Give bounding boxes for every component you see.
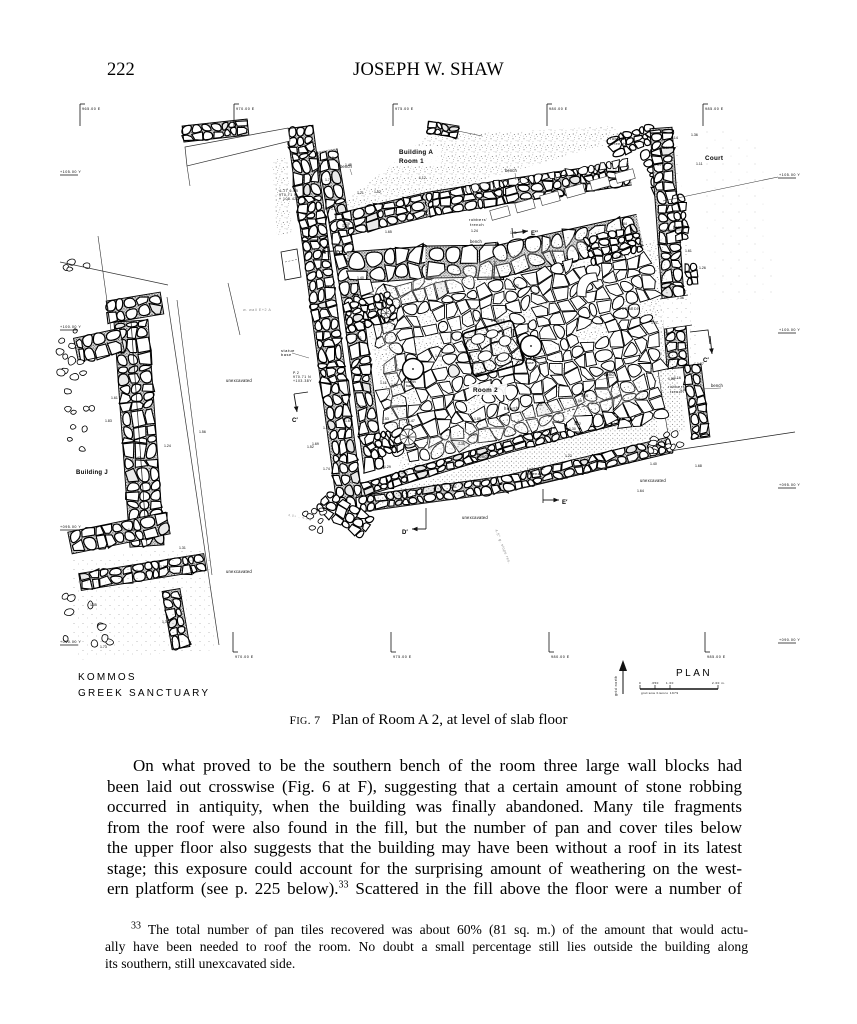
svg-text:975.00 E: 975.00 E xyxy=(393,655,412,659)
svg-text:1.64: 1.64 xyxy=(345,419,352,423)
svg-text:bench: bench xyxy=(470,239,482,244)
svg-text:1.62: 1.62 xyxy=(574,422,581,426)
svg-text:Court: Court xyxy=(705,155,724,162)
svg-text:+090.00 Y: +090.00 Y xyxy=(60,640,81,644)
svg-text:bench: bench xyxy=(673,225,685,230)
svg-text:unexcavated: unexcavated xyxy=(226,569,252,574)
svg-text:1.85: 1.85 xyxy=(474,417,481,421)
svg-text:Room 1: Room 1 xyxy=(399,158,424,165)
svg-text:1.42: 1.42 xyxy=(512,284,519,288)
svg-text:1.36: 1.36 xyxy=(677,296,684,300)
svg-text:bench: bench xyxy=(477,454,489,459)
svg-text:1.61: 1.61 xyxy=(111,396,118,400)
svg-text:1.36: 1.36 xyxy=(691,133,698,137)
svg-text:1.21: 1.21 xyxy=(357,191,364,195)
svg-text:1.38: 1.38 xyxy=(561,476,568,480)
svg-text:hearth: hearth xyxy=(491,318,506,323)
svg-text:Building A: Building A xyxy=(399,149,433,156)
svg-text:Room 2: Room 2 xyxy=(473,387,498,394)
svg-text:1.81: 1.81 xyxy=(355,336,362,340)
svg-text:1.71: 1.71 xyxy=(651,321,658,325)
svg-text:1.35: 1.35 xyxy=(435,354,442,358)
svg-text:+095.00 Y: +095.00 Y xyxy=(779,483,800,487)
svg-text:+100.00 Y: +100.00 Y xyxy=(60,325,81,329)
svg-text:.050: .050 xyxy=(651,681,659,685)
svg-text:1.73: 1.73 xyxy=(100,645,107,649)
svg-text:PLAN: PLAN xyxy=(676,668,712,679)
svg-text:4.5° g. slope res.: 4.5° g. slope res. xyxy=(494,529,511,565)
svg-text:1.45: 1.45 xyxy=(345,163,352,167)
svg-text:1.71: 1.71 xyxy=(657,163,664,167)
svg-text:1.82: 1.82 xyxy=(680,388,687,392)
svg-text:0: 0 xyxy=(639,681,641,685)
svg-text:1.52: 1.52 xyxy=(307,445,314,449)
svg-text:1.00: 1.00 xyxy=(666,681,674,685)
svg-text:1.59: 1.59 xyxy=(616,255,623,259)
svg-text:w. wall E+2 A: w. wall E+2 A xyxy=(243,308,271,312)
svg-text:+ 108.42Y: + 108.42Y xyxy=(279,197,300,201)
svg-text:1.35: 1.35 xyxy=(162,620,169,624)
svg-text:+105.00 Y: +105.00 Y xyxy=(779,173,800,177)
svg-text:1.22: 1.22 xyxy=(565,454,572,458)
svg-text:1.12: 1.12 xyxy=(419,176,426,180)
svg-text:980.00 E: 980.00 E xyxy=(551,655,570,659)
svg-text:trench: trench xyxy=(612,141,626,146)
svg-text:1.47: 1.47 xyxy=(134,456,141,460)
svg-text:1.76: 1.76 xyxy=(325,178,332,182)
svg-text:C′: C′ xyxy=(292,418,298,424)
svg-text:1.64: 1.64 xyxy=(637,489,644,493)
svg-text:1.56: 1.56 xyxy=(575,399,582,403)
svg-text:bench: bench xyxy=(505,168,517,173)
svg-text:+103.38Y: +103.38Y xyxy=(293,379,312,383)
svg-text:KOMMOS: KOMMOS xyxy=(78,672,137,683)
svg-text:+090.00 Y: +090.00 Y xyxy=(779,638,800,642)
svg-text:985.00 E: 985.00 E xyxy=(707,655,726,659)
svg-text:1.69: 1.69 xyxy=(581,394,588,398)
svg-text:base: base xyxy=(526,361,534,365)
svg-text:+100.00 Y: +100.00 Y xyxy=(779,328,800,332)
svg-text:1.31: 1.31 xyxy=(536,403,543,407)
svg-text:1.84: 1.84 xyxy=(620,222,627,226)
svg-text:1.83: 1.83 xyxy=(105,419,112,423)
svg-text:970.00 E: 970.00 E xyxy=(235,655,254,659)
svg-text:D′: D′ xyxy=(402,530,408,536)
svg-text:C′: C′ xyxy=(703,358,709,364)
svg-text:unexcavated: unexcavated xyxy=(640,478,666,483)
svg-text:giuliana bianco 1979: giuliana bianco 1979 xyxy=(641,691,679,695)
svg-text:1.57: 1.57 xyxy=(470,433,477,437)
svg-text:E″: E″ xyxy=(531,231,538,237)
svg-text:E′: E′ xyxy=(562,500,568,506)
svg-text:+095.00 Y: +095.00 Y xyxy=(60,525,81,529)
svg-text:entrance: entrance xyxy=(619,306,639,311)
svg-text:base: base xyxy=(406,384,414,388)
svg-text:1.50: 1.50 xyxy=(615,169,622,173)
svg-text:1.31: 1.31 xyxy=(179,546,186,550)
svg-text:trench: trench xyxy=(529,471,543,476)
svg-text:1.61: 1.61 xyxy=(685,249,692,253)
svg-text:1.70: 1.70 xyxy=(357,405,364,409)
svg-text:GREEK SANCTUARY: GREEK SANCTUARY xyxy=(78,688,210,699)
svg-text:1.24: 1.24 xyxy=(471,229,478,233)
svg-text:2.00 m.: 2.00 m. xyxy=(712,681,726,685)
svg-text:1.40: 1.40 xyxy=(650,462,657,466)
svg-text:1.26: 1.26 xyxy=(699,266,706,270)
svg-text:bench: bench xyxy=(604,372,616,377)
svg-text:1.14: 1.14 xyxy=(671,136,678,140)
svg-text:1.36: 1.36 xyxy=(458,442,465,446)
svg-text:1.47: 1.47 xyxy=(408,419,415,423)
svg-text:D″: D″ xyxy=(336,251,343,257)
svg-text:1.53: 1.53 xyxy=(382,417,389,421)
svg-text:1.24: 1.24 xyxy=(164,444,171,448)
svg-text:985.00 E: 985.00 E xyxy=(705,107,724,111)
svg-text:1.98: 1.98 xyxy=(128,528,135,532)
svg-text:1.68: 1.68 xyxy=(695,464,702,468)
svg-text:1.15: 1.15 xyxy=(342,224,349,228)
svg-text:Building J: Building J xyxy=(76,470,108,476)
svg-text:1.47: 1.47 xyxy=(401,471,408,475)
svg-text:1.74: 1.74 xyxy=(323,467,330,471)
svg-text:1.35: 1.35 xyxy=(90,603,97,607)
svg-text:1.31: 1.31 xyxy=(450,485,457,489)
svg-text:1.56: 1.56 xyxy=(199,430,206,434)
svg-text:1.38: 1.38 xyxy=(160,565,167,569)
svg-text:1.34: 1.34 xyxy=(331,207,338,211)
svg-text:1.11: 1.11 xyxy=(696,162,703,166)
svg-text:unexcavated: unexcavated xyxy=(226,378,252,383)
svg-text:trench: trench xyxy=(470,222,484,227)
svg-text:970.00 E: 970.00 E xyxy=(236,107,255,111)
svg-text:unexcavated: unexcavated xyxy=(462,515,488,520)
svg-text:1.86: 1.86 xyxy=(668,377,675,381)
svg-text:1.19: 1.19 xyxy=(327,156,334,160)
svg-text:1.81: 1.81 xyxy=(347,296,354,300)
svg-text:1.57: 1.57 xyxy=(663,146,670,150)
svg-text:1.52: 1.52 xyxy=(374,190,381,194)
svg-text:1.34: 1.34 xyxy=(323,426,330,430)
svg-text:grid north: grid north xyxy=(614,675,618,696)
svg-text:975.00 E: 975.00 E xyxy=(395,107,414,111)
svg-text:bench: bench xyxy=(711,383,723,388)
svg-text:1.97: 1.97 xyxy=(391,383,398,387)
svg-text:1.40: 1.40 xyxy=(357,276,364,280)
svg-text:1.30: 1.30 xyxy=(569,427,576,431)
svg-text:980.00 E: 980.00 E xyxy=(549,107,568,111)
svg-text:1.11: 1.11 xyxy=(380,381,387,385)
svg-text:965.00 E: 965.00 E xyxy=(82,107,101,111)
svg-text:1.16: 1.16 xyxy=(674,376,681,380)
svg-text:+105.00 Y: +105.00 Y xyxy=(60,170,81,174)
svg-text:1.29: 1.29 xyxy=(384,465,391,469)
svg-text:1.65: 1.65 xyxy=(385,230,392,234)
svg-text:hearth: hearth xyxy=(504,406,519,411)
svg-text:base: base xyxy=(281,352,292,357)
